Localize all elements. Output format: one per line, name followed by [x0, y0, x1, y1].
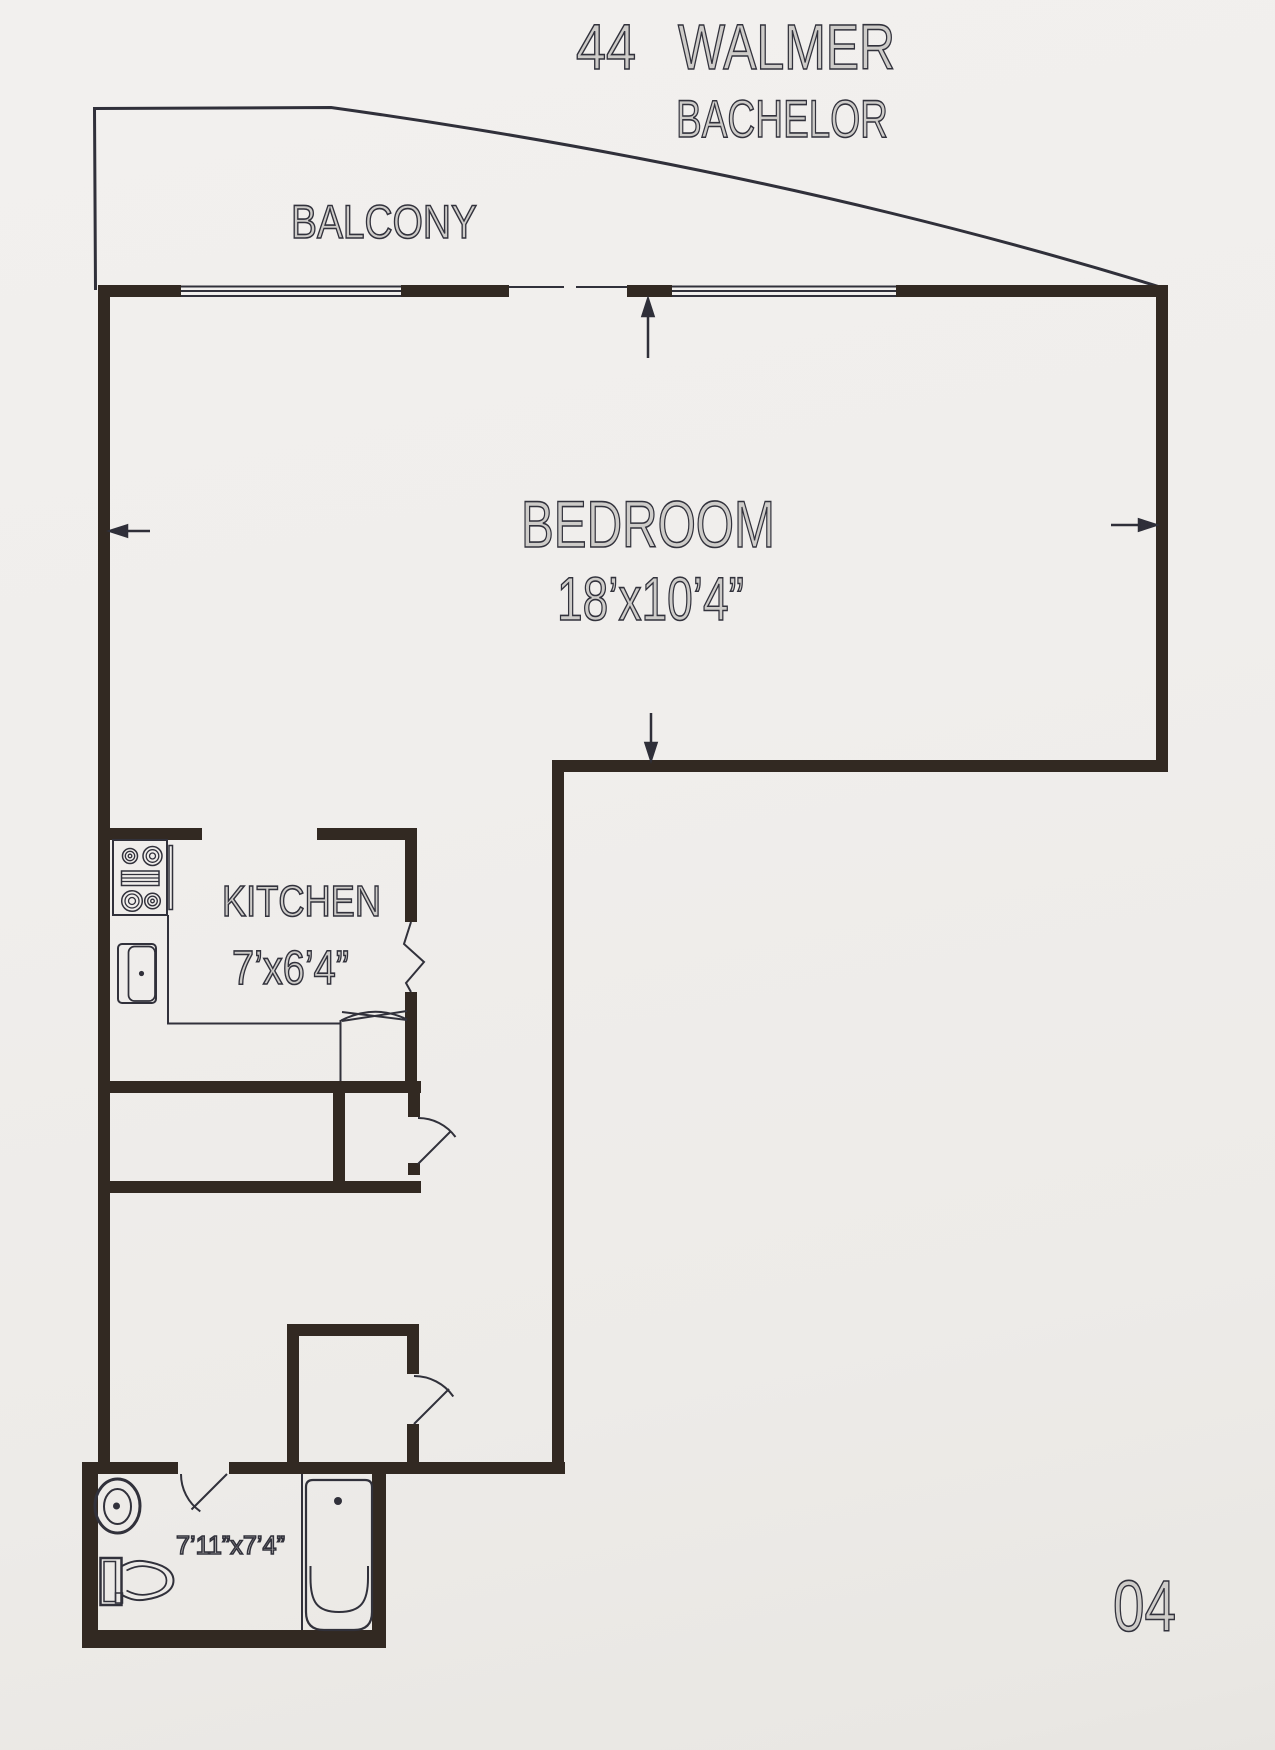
svg-text:BALCONY: BALCONY	[291, 195, 477, 248]
svg-text:7’x6’4”: 7’x6’4”	[232, 942, 349, 995]
svg-text:7’11”x7’4”: 7’11”x7’4”	[176, 1530, 285, 1560]
svg-text:BACHELOR: BACHELOR	[676, 90, 888, 149]
svg-text:WALMER: WALMER	[678, 11, 895, 83]
svg-text:18’x10’4”: 18’x10’4”	[557, 565, 744, 633]
svg-text:BEDROOM: BEDROOM	[521, 487, 775, 561]
svg-text:44: 44	[576, 11, 636, 83]
svg-text:KITCHEN: KITCHEN	[222, 877, 381, 926]
svg-text:04: 04	[1113, 1567, 1176, 1647]
